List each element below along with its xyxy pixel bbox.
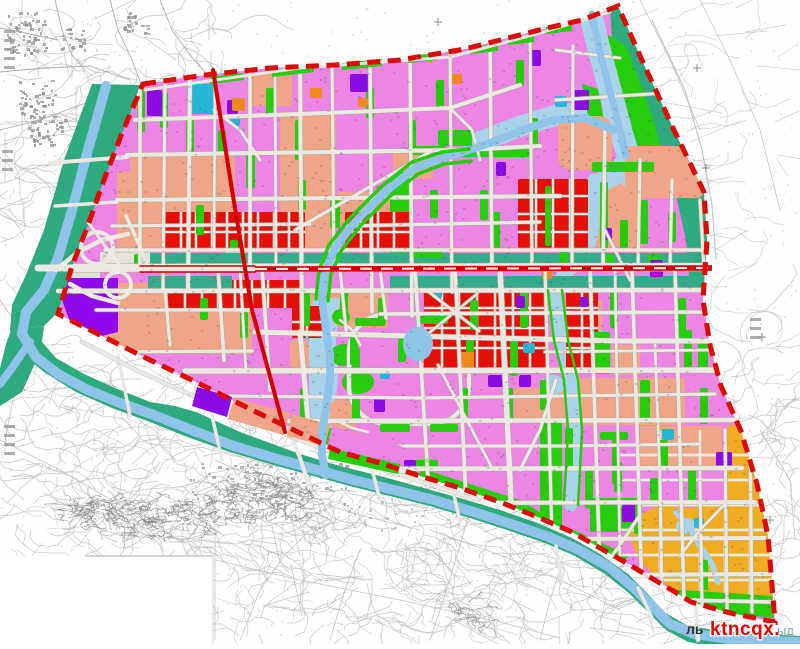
svg-text:ль: ль bbox=[686, 621, 704, 637]
svg-text:ыд: ыд bbox=[777, 623, 794, 638]
svg-text:ktncqx.: ktncqx. bbox=[710, 619, 780, 640]
